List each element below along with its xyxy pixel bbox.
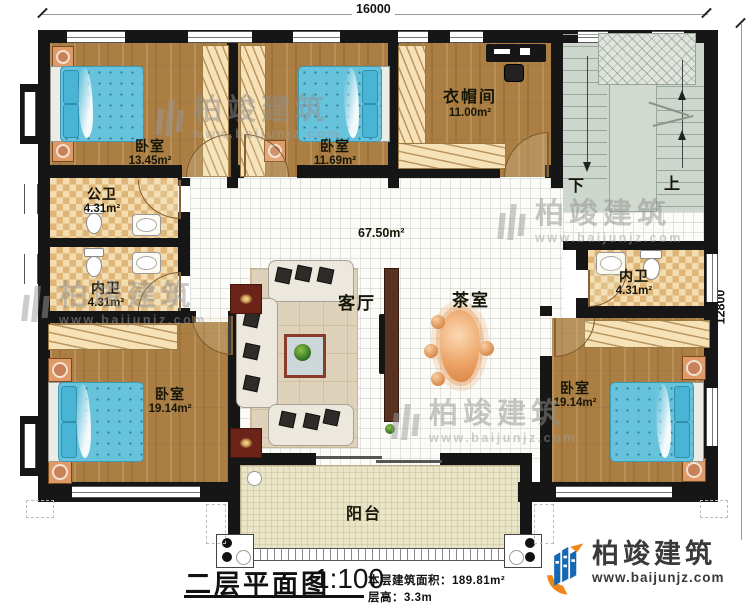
window [72, 486, 200, 498]
tea-stool [479, 341, 494, 356]
room-area: 11.00m² [424, 107, 516, 121]
sofa-pillow [303, 413, 321, 431]
tv-cabinet [384, 268, 399, 422]
room-name: 卧室 [108, 138, 192, 155]
pillow [61, 422, 77, 458]
nightstand [48, 358, 72, 382]
sink [132, 214, 161, 236]
stair-down-label: 下 [568, 172, 584, 196]
sink [132, 252, 161, 274]
room-name: 公卫 [68, 186, 136, 203]
dimension-tick [37, 8, 48, 19]
floor-height-stat: 层高：3.3m [368, 589, 432, 605]
closet-bedroom-bl [48, 324, 178, 350]
tea-stool [424, 344, 438, 358]
room-name: 衣帽间 [424, 88, 516, 107]
eave-outline [700, 500, 728, 518]
desk-item [520, 48, 530, 55]
balcony-label: 阳台 [346, 500, 382, 524]
title-underline [184, 595, 364, 598]
closet-bedroom-br [584, 320, 710, 348]
room-label-bedroom-bottom-right: 卧室 19.14m² [533, 380, 617, 411]
side-table [230, 428, 262, 458]
wall-bath-r-bottom [576, 306, 718, 318]
pillow [674, 386, 690, 422]
window [556, 486, 672, 498]
pillow [674, 422, 690, 458]
bath-window [24, 184, 38, 214]
wall-hall-south-b [440, 453, 522, 465]
wall-bath-r-top [563, 241, 718, 250]
sofa-pillow [317, 267, 335, 285]
nightstand [48, 460, 72, 484]
sofa-pillow [279, 411, 297, 429]
window [706, 388, 718, 446]
wall-bath-right-b [178, 212, 190, 276]
room-label-bedroom-bottom-left: 卧室 19.14m² [128, 386, 212, 417]
sliding-door-panel [376, 460, 442, 463]
pillow [63, 104, 79, 138]
room-area: 4.31m² [598, 285, 670, 299]
floor-area-value: 189.81m² [452, 575, 505, 587]
brand-website: www.baijunjz.com [592, 570, 725, 585]
window [293, 31, 340, 43]
sofa-pillow [243, 375, 261, 393]
side-table [230, 284, 262, 314]
brand-name: 柏竣建筑 [592, 540, 725, 570]
room-label-bedroom-top-left: 卧室 13.45m² [108, 138, 192, 169]
bath-window [24, 254, 38, 284]
brand-logo-icon [540, 540, 586, 598]
sofa-pillow [323, 409, 341, 427]
eave-outline [206, 504, 226, 544]
pillow [63, 70, 79, 104]
nightstand [52, 140, 74, 162]
window [450, 31, 483, 43]
room-label-inner-bath-right: 内卫 4.31m² [598, 268, 670, 299]
floor-area-label: 本层建筑面积： [368, 575, 452, 587]
room-label-cloakroom: 衣帽间 11.00m² [424, 88, 516, 121]
window [188, 31, 252, 43]
chair [504, 64, 524, 82]
sofa-pillow [243, 343, 261, 361]
column-dot [525, 552, 535, 562]
wall-between-baths [38, 238, 190, 247]
eave-outline [26, 500, 54, 518]
room-name: 内卫 [598, 268, 670, 285]
living-room-label: 客厅 [338, 289, 376, 314]
sofa-pillow [275, 267, 293, 285]
room-name: 卧室 [128, 386, 212, 403]
tea-stool [431, 315, 445, 329]
room-name: 卧室 [293, 138, 377, 155]
room-area: 13.45m² [108, 155, 192, 169]
stair-direction-line [587, 56, 588, 168]
wall-bath-bottom [38, 311, 196, 323]
wall-bath-r-left-a [576, 250, 588, 270]
room-area: 4.31m² [68, 203, 136, 217]
window [706, 254, 718, 302]
room-name: 内卫 [72, 280, 140, 297]
bay-window [24, 92, 36, 136]
tea-stool [431, 372, 445, 386]
sofa-pillow [295, 265, 313, 283]
room-label-bedroom-top-mid: 卧室 11.69m² [293, 138, 377, 169]
balcony-railing [238, 548, 524, 561]
stair-up-arrow [678, 90, 686, 100]
room-area: 4.31m² [72, 297, 140, 311]
nightstand [52, 46, 74, 68]
room-area: 19.14m² [128, 403, 212, 417]
sliding-door-panel [316, 456, 382, 459]
right-dimension-line [741, 24, 742, 540]
stair-down-arrow [583, 162, 591, 172]
window [398, 31, 428, 43]
stair-up-arrow [678, 130, 686, 140]
plant [294, 344, 311, 361]
eave-outline [534, 504, 554, 544]
floor-height-label: 层高： [368, 592, 404, 604]
room-area: 19.14m² [533, 397, 617, 411]
floor-drain [247, 471, 262, 486]
room-label-public-bath: 公卫 4.31m² [68, 186, 136, 217]
wall-bedroom-br-left-a [540, 306, 552, 316]
closet-cloakroom-left [398, 45, 426, 147]
brand-logo: 柏竣建筑 www.baijunjz.com [540, 540, 725, 598]
tv [379, 314, 385, 374]
pillow [362, 70, 378, 104]
top-dimension-value: 16000 [352, 2, 395, 16]
plant [385, 424, 395, 434]
stair-up-label: 上 [664, 170, 680, 194]
room-label-inner-bath-left: 内卫 4.31m² [72, 280, 140, 311]
column-dot [222, 552, 232, 562]
closet-cloakroom-bottom [398, 143, 506, 169]
column-ring [509, 550, 524, 565]
pillow [61, 386, 77, 422]
dimension-tick [701, 8, 712, 19]
bay-window [24, 424, 36, 468]
floor-height-value: 3.3m [404, 592, 432, 604]
wall-bedroom-br-left-b [540, 356, 552, 492]
floor-area-stat: 本层建筑面积：189.81m² [368, 572, 505, 588]
hall-area-label: 67.50m² [358, 226, 405, 240]
pillow [362, 104, 378, 138]
stair-landing-corridor [563, 212, 704, 243]
column-ring [236, 550, 251, 565]
window [67, 31, 125, 43]
floor-plan-canvas: 16000 12800 [0, 0, 750, 611]
room-area: 11.69m² [293, 155, 377, 169]
tea-table [440, 310, 480, 382]
room-name: 卧室 [533, 380, 617, 397]
tea-room-label: 茶室 [452, 286, 490, 311]
nightstand [682, 356, 706, 380]
desk-item [494, 49, 510, 54]
